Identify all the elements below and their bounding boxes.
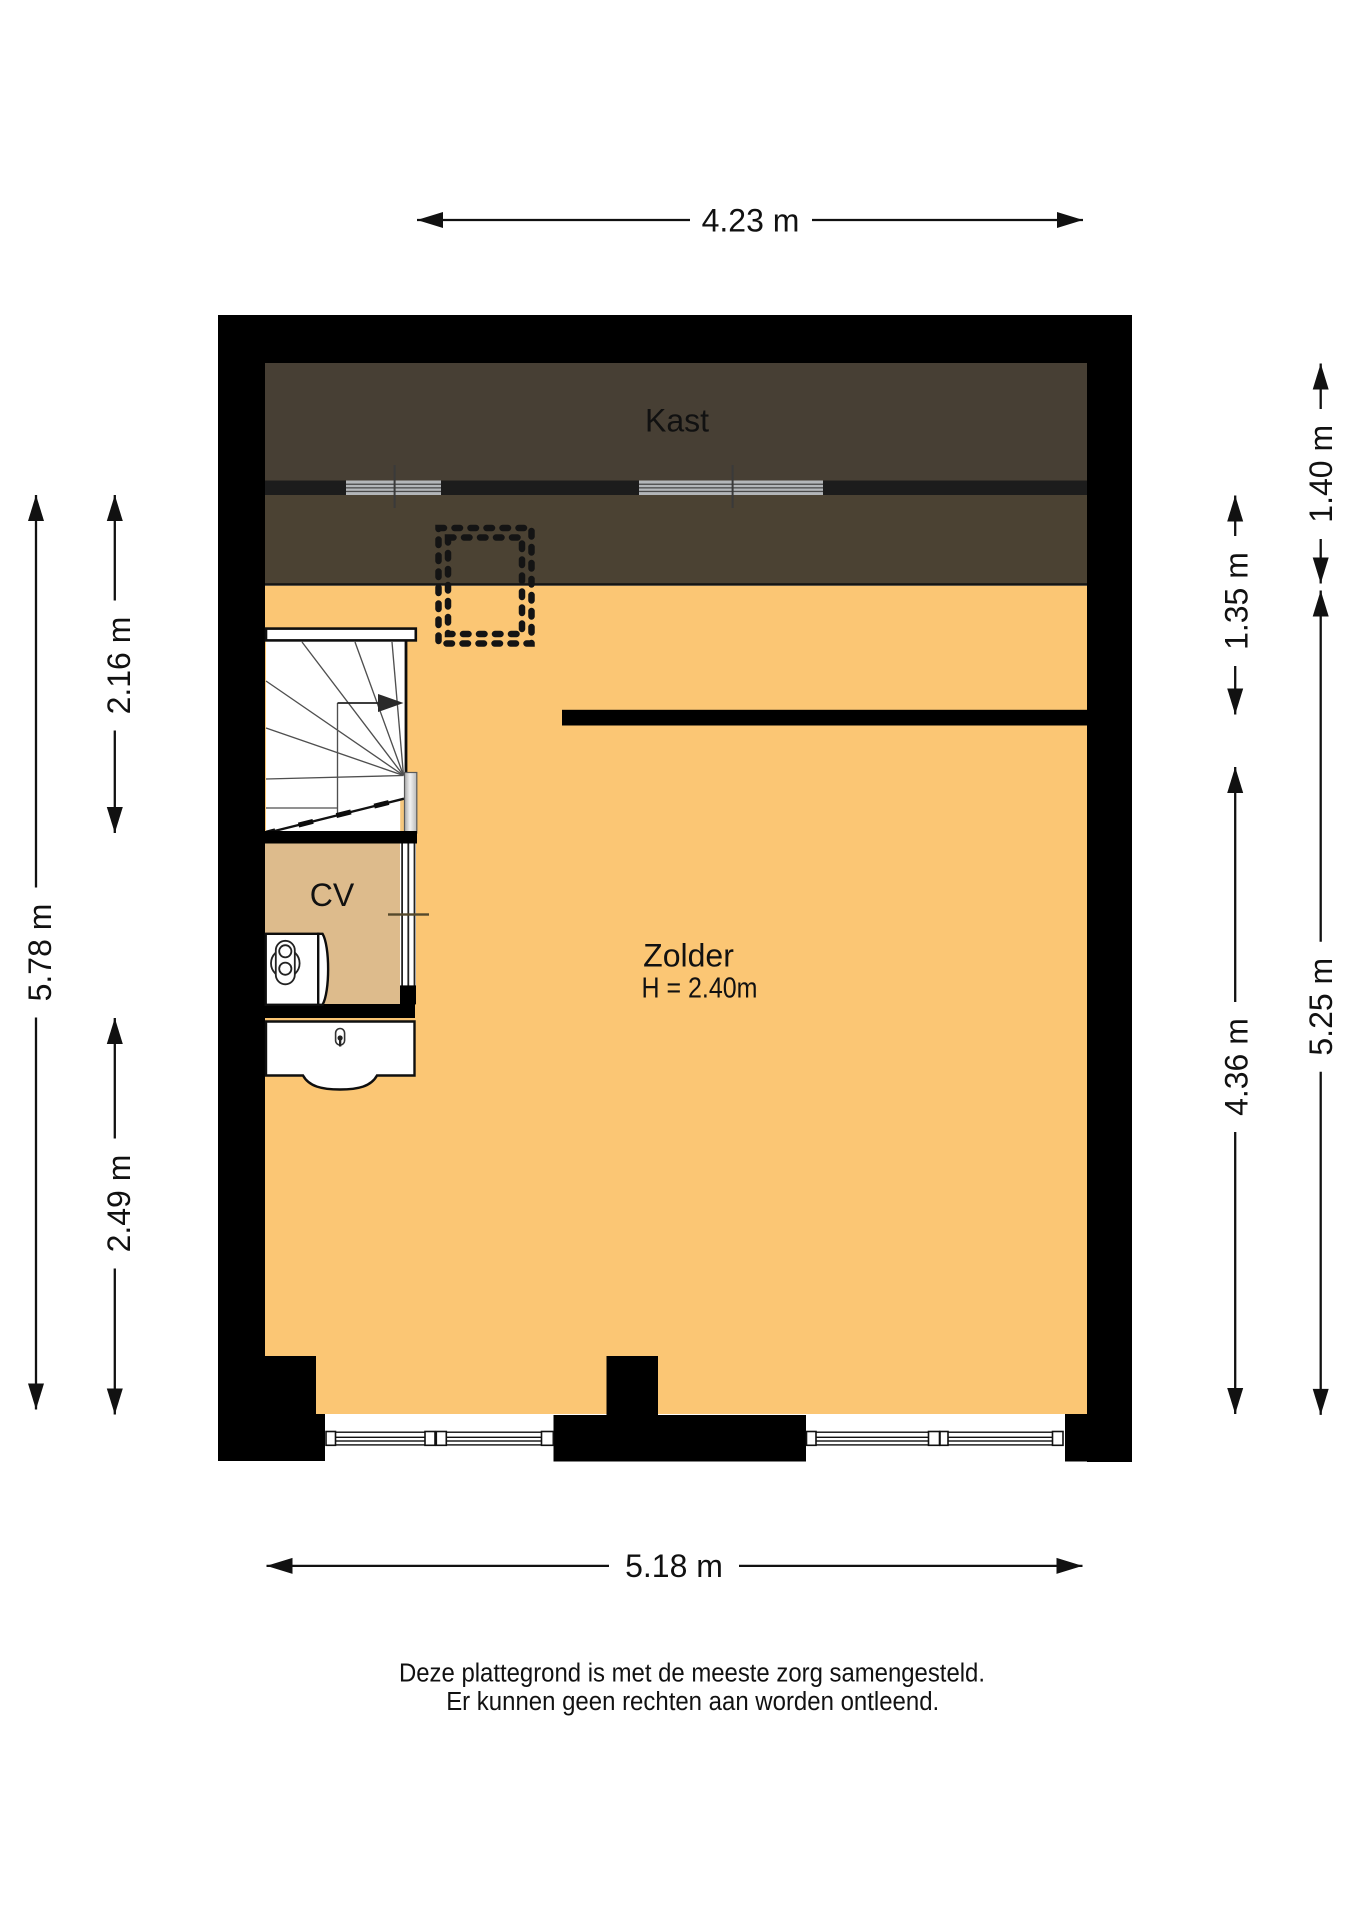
svg-text:CV: CV bbox=[310, 877, 355, 913]
svg-text:4.23 m: 4.23 m bbox=[702, 203, 800, 239]
svg-text:H = 2.40m: H = 2.40m bbox=[642, 973, 758, 1005]
svg-text:Kast: Kast bbox=[645, 403, 709, 439]
svg-text:5.18 m: 5.18 m bbox=[625, 1548, 723, 1584]
svg-text:1.40 m: 1.40 m bbox=[1303, 425, 1339, 523]
svg-text:1.35 m: 1.35 m bbox=[1218, 552, 1254, 650]
svg-text:Deze plattegrond is met de mee: Deze plattegrond is met de meeste zorg s… bbox=[399, 1660, 985, 1688]
svg-text:Zolder: Zolder bbox=[643, 938, 734, 974]
svg-text:2.16 m: 2.16 m bbox=[101, 617, 137, 715]
svg-text:4.36 m: 4.36 m bbox=[1218, 1018, 1254, 1116]
svg-text:2.49 m: 2.49 m bbox=[101, 1155, 137, 1253]
svg-text:5.25 m: 5.25 m bbox=[1303, 958, 1339, 1056]
svg-text:Er kunnen geen rechten aan wor: Er kunnen geen rechten aan worden ontlee… bbox=[446, 1688, 939, 1716]
svg-text:5.78 m: 5.78 m bbox=[22, 904, 58, 1002]
